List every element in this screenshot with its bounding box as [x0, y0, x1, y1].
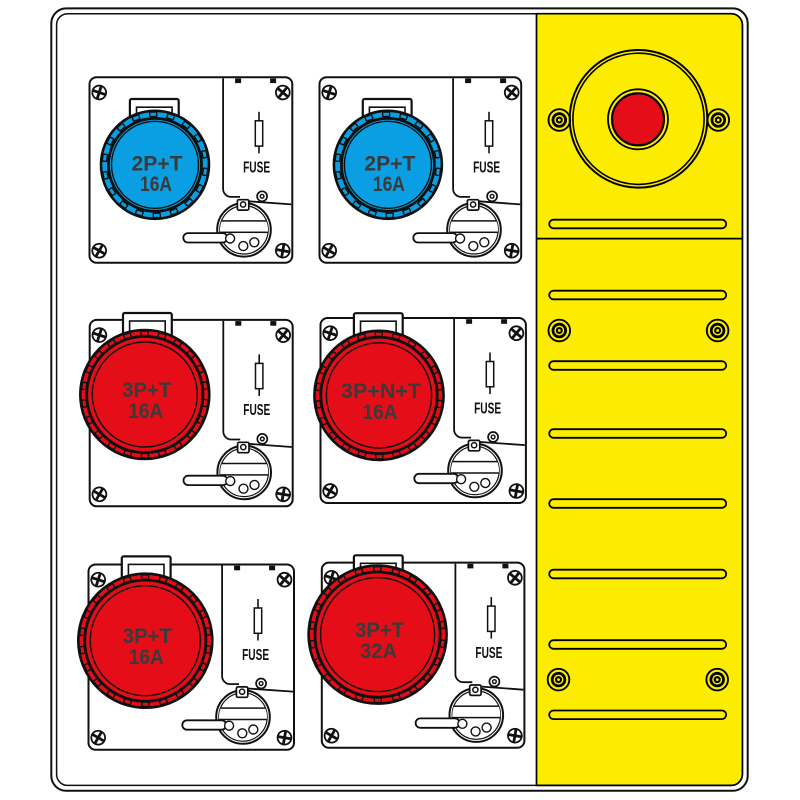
svg-text:FUSE: FUSE	[473, 160, 500, 177]
svg-text:FUSE: FUSE	[475, 645, 502, 662]
svg-text:32A: 32A	[360, 639, 397, 663]
svg-text:FUSE: FUSE	[243, 160, 270, 177]
svg-text:16A: 16A	[129, 645, 164, 669]
svg-text:FUSE: FUSE	[242, 647, 269, 664]
svg-text:16A: 16A	[363, 400, 398, 424]
svg-text:FUSE: FUSE	[243, 402, 270, 419]
svg-text:16A: 16A	[128, 399, 163, 423]
svg-text:FUSE: FUSE	[474, 400, 501, 417]
svg-text:16A: 16A	[140, 173, 172, 196]
svg-text:16A: 16A	[373, 173, 405, 196]
